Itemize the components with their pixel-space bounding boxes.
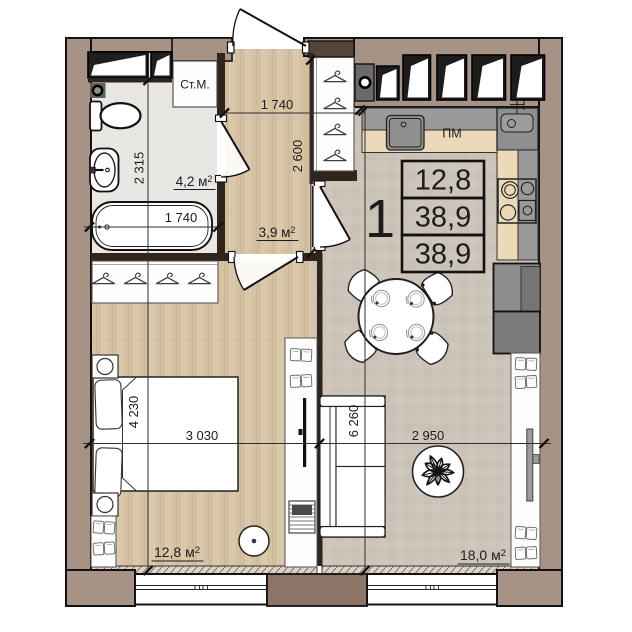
svg-text:2 315: 2 315 bbox=[132, 152, 147, 185]
svg-text:38,9: 38,9 bbox=[415, 202, 471, 234]
svg-text:1: 1 bbox=[365, 189, 395, 249]
svg-text:4 230: 4 230 bbox=[126, 396, 141, 429]
svg-text:4,2 м2: 4,2 м2 bbox=[176, 174, 213, 189]
svg-text:Ст.М.: Ст.М. bbox=[180, 78, 210, 92]
svg-text:2 950: 2 950 bbox=[412, 428, 445, 443]
svg-text:38,9: 38,9 bbox=[415, 239, 471, 271]
svg-text:1 740: 1 740 bbox=[165, 210, 198, 225]
svg-text:18,0 м2: 18,0 м2 bbox=[460, 547, 506, 563]
svg-text:3,9 м2: 3,9 м2 bbox=[259, 225, 296, 240]
svg-text:1 740: 1 740 bbox=[261, 97, 294, 112]
svg-text:ПМ: ПМ bbox=[442, 127, 461, 141]
svg-text:3 030: 3 030 bbox=[186, 428, 219, 443]
svg-text:2 600: 2 600 bbox=[290, 140, 305, 173]
svg-text:12,8: 12,8 bbox=[415, 165, 471, 197]
svg-text:6 260: 6 260 bbox=[346, 405, 361, 438]
svg-text:12,8 м2: 12,8 м2 bbox=[154, 544, 200, 560]
